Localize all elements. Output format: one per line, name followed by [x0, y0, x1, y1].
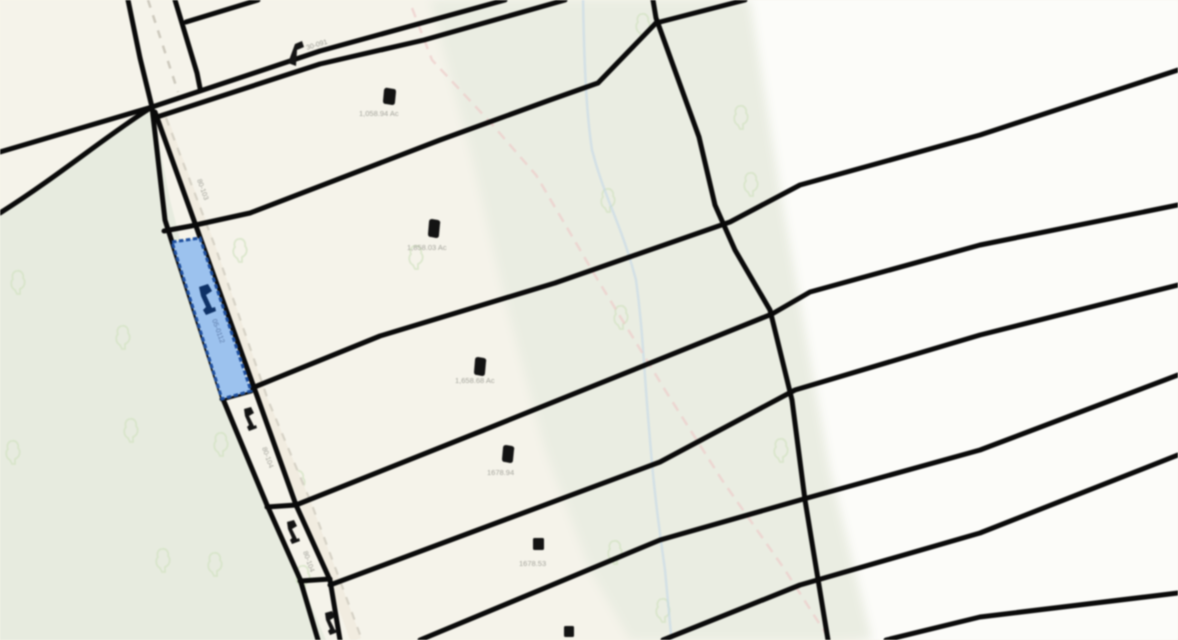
svg-text:1678.53: 1678.53 — [519, 559, 546, 568]
svg-text:1,858.03 Ac: 1,858.03 Ac — [407, 243, 447, 252]
svg-text:1,658.68 Ac: 1,658.68 Ac — [455, 376, 495, 385]
svg-text:1678.94: 1678.94 — [487, 468, 514, 477]
svg-text:1,058.94 Ac: 1,058.94 Ac — [359, 109, 399, 118]
